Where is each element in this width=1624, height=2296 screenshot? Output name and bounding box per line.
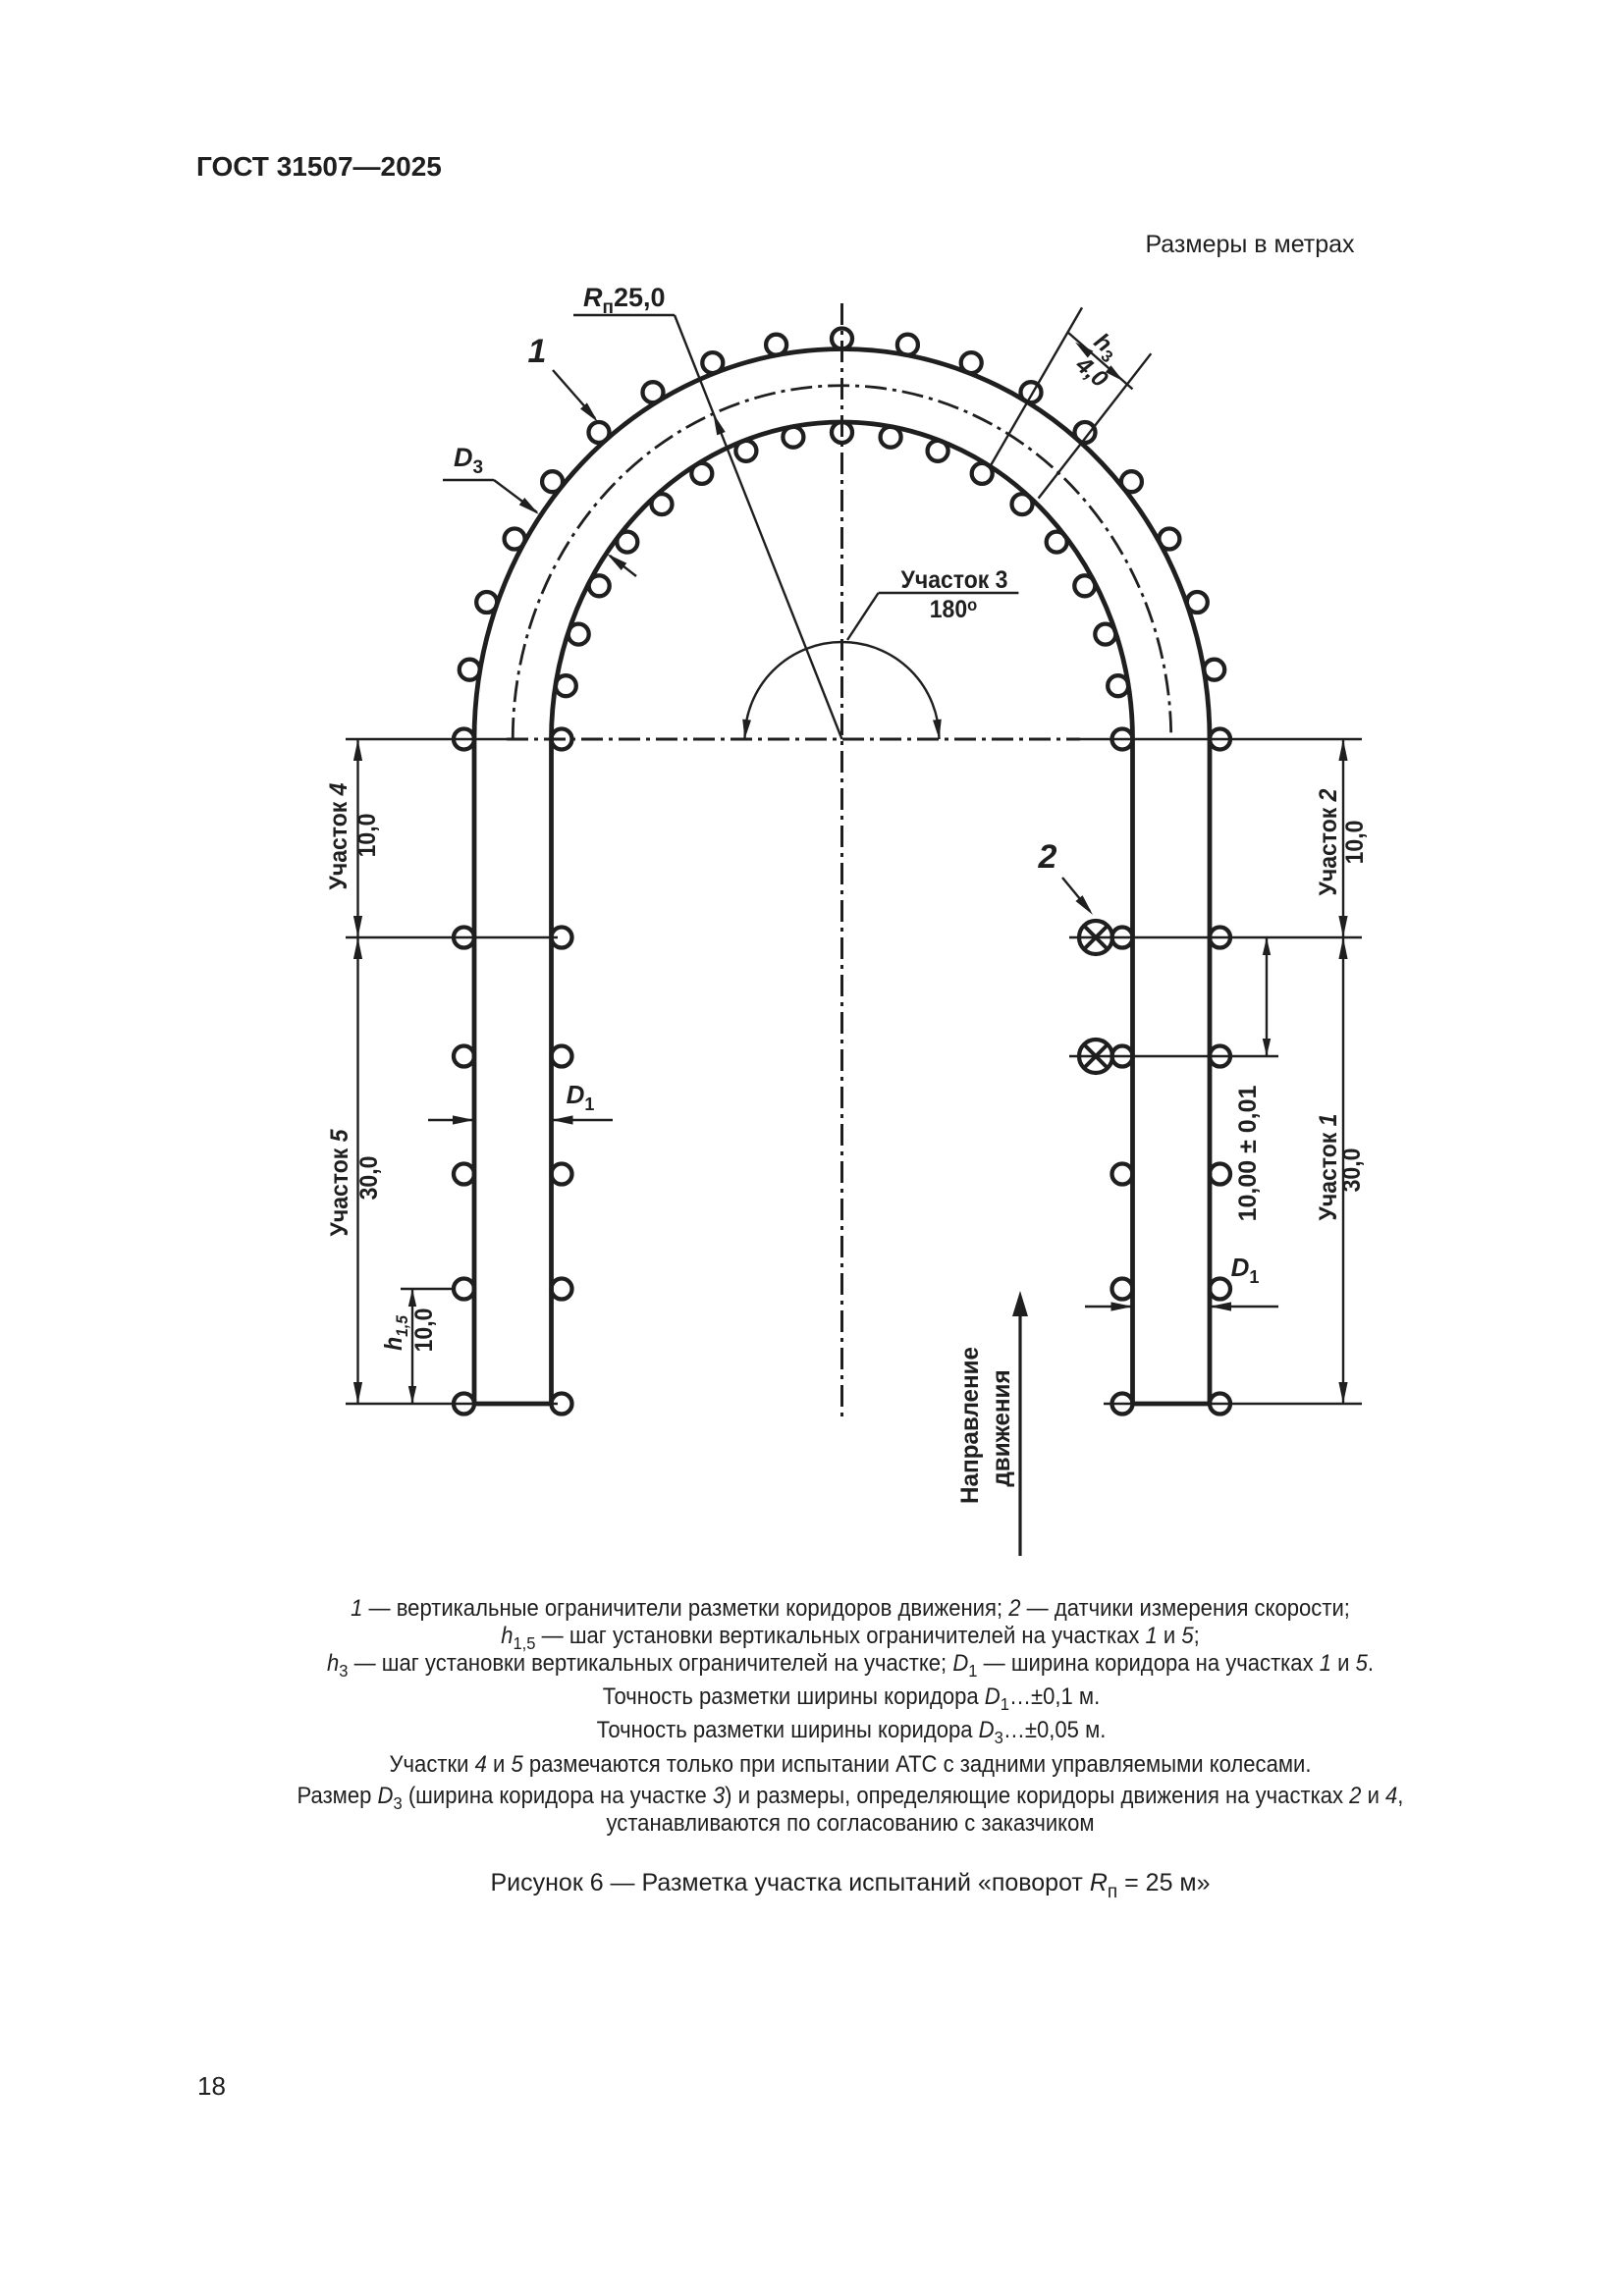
svg-text:Участок 3: Участок 3 xyxy=(901,566,1008,594)
svg-text:движения: движения xyxy=(989,1369,1015,1486)
svg-text:2: 2 xyxy=(1038,838,1057,876)
svg-text:ГОСТ 31507—2025: ГОСТ 31507—2025 xyxy=(196,151,442,182)
svg-text:10,0: 10,0 xyxy=(1341,821,1369,865)
svg-text:Направление: Направление xyxy=(957,1347,984,1504)
svg-text:30,0: 30,0 xyxy=(1338,1148,1366,1193)
svg-text:10,00 ± 0,01: 10,00 ± 0,01 xyxy=(1234,1085,1262,1221)
svg-text:18: 18 xyxy=(197,2071,226,2101)
svg-text:1: 1 xyxy=(528,333,547,370)
svg-text:Участок 5: Участок 5 xyxy=(326,1129,353,1237)
svg-text:устанавливаются по согласовани: устанавливаются по согласованию с заказч… xyxy=(606,1809,1094,1836)
svg-text:30,0: 30,0 xyxy=(355,1156,383,1201)
svg-text:1 — вертикальные ограничители: 1 — вертикальные ограничители разметки к… xyxy=(351,1594,1350,1621)
svg-text:Участки 4 и 5 размечаются толь: Участки 4 и 5 размечаются только при исп… xyxy=(390,1750,1312,1777)
svg-text:Участок 2: Участок 2 xyxy=(1315,788,1342,896)
svg-text:Размеры в метрах: Размеры в метрах xyxy=(1145,231,1355,258)
svg-text:10,0: 10,0 xyxy=(353,814,381,858)
svg-text:Участок 4: Участок 4 xyxy=(325,783,352,890)
svg-text:10,0: 10,0 xyxy=(410,1308,438,1353)
